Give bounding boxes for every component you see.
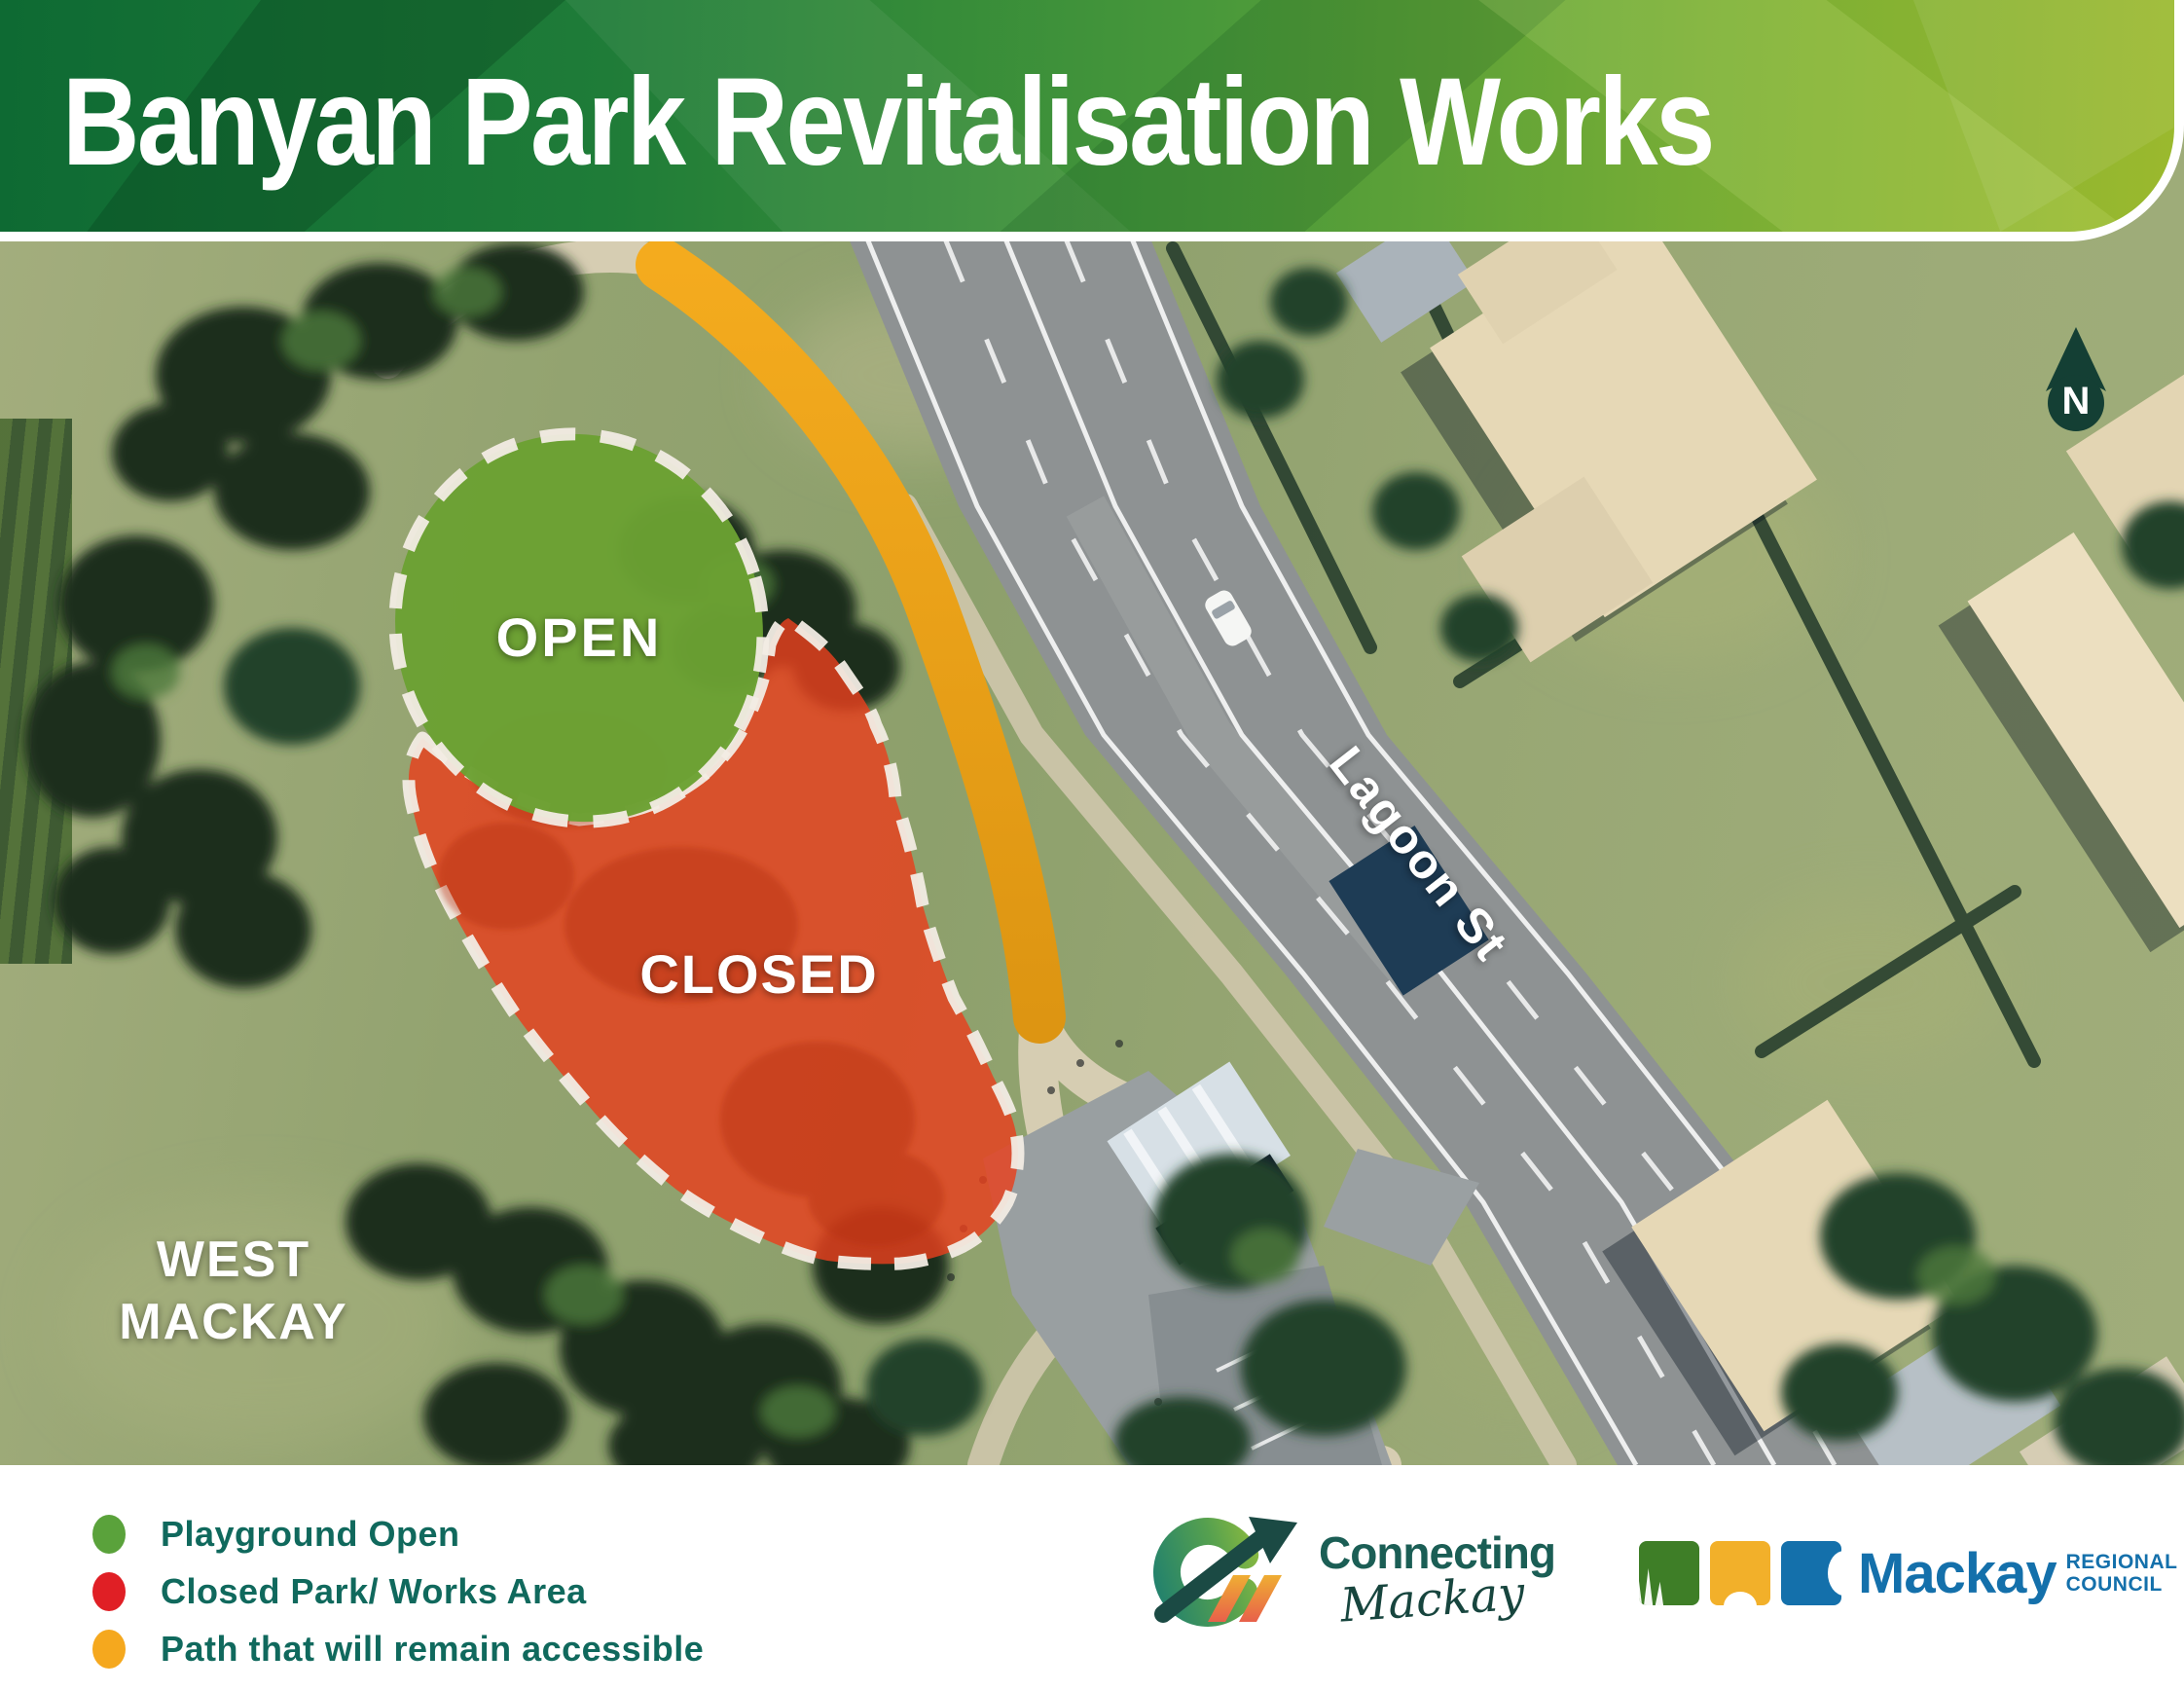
council-yellow-tile-icon <box>1710 1541 1770 1605</box>
page-header: Banyan Park Revitalisation Works <box>0 0 2184 241</box>
legend-item-closed-works: Closed Park/ Works Area <box>92 1562 704 1620</box>
house-roof <box>1968 533 2184 928</box>
suburb-label-line1: WEST <box>107 1229 360 1291</box>
poster: OPEN CLOSED WEST MACKAY Lagoon St N Bany… <box>0 0 2184 1690</box>
council-name: Mackay <box>1858 1541 2057 1606</box>
legend-item-label: Path that will remain accessible <box>161 1629 704 1670</box>
header-background: Banyan Park Revitalisation Works <box>0 0 2174 232</box>
council-subtitle-line1: REGIONAL <box>2066 1551 2178 1573</box>
open-area-label: OPEN <box>482 606 676 669</box>
suburb-label: WEST MACKAY <box>107 1229 360 1353</box>
council-subtitle: REGIONAL COUNCIL <box>2066 1551 2178 1596</box>
compass-n-label: N <box>2047 380 2105 423</box>
suburb-label-line2: MACKAY <box>107 1291 360 1353</box>
connecting-mackay-mark-icon <box>1151 1513 1312 1632</box>
legend-yellow-dot-icon <box>92 1630 126 1669</box>
legend-item-playground-open: Playground Open <box>92 1505 704 1562</box>
connecting-mackay-logo: Connecting Mackay <box>1151 1509 1599 1645</box>
legend-item-label: Playground Open <box>161 1514 460 1555</box>
legend-green-dot-icon <box>92 1515 126 1554</box>
legend-item-path-accessible: Path that will remain accessible <box>92 1620 704 1677</box>
legend-item-label: Closed Park/ Works Area <box>161 1571 587 1612</box>
legend: Playground Open Closed Park/ Works Area … <box>92 1505 704 1677</box>
council-logo: Mackay REGIONAL COUNCIL <box>1639 1538 2177 1608</box>
legend-red-dot-icon <box>92 1572 126 1611</box>
council-green-tile-icon <box>1639 1541 1699 1605</box>
closed-area-label: CLOSED <box>623 942 895 1006</box>
council-blue-tile-icon <box>1781 1541 1841 1605</box>
page-title: Banyan Park Revitalisation Works <box>62 51 1713 194</box>
council-subtitle-line2: COUNCIL <box>2066 1573 2178 1596</box>
